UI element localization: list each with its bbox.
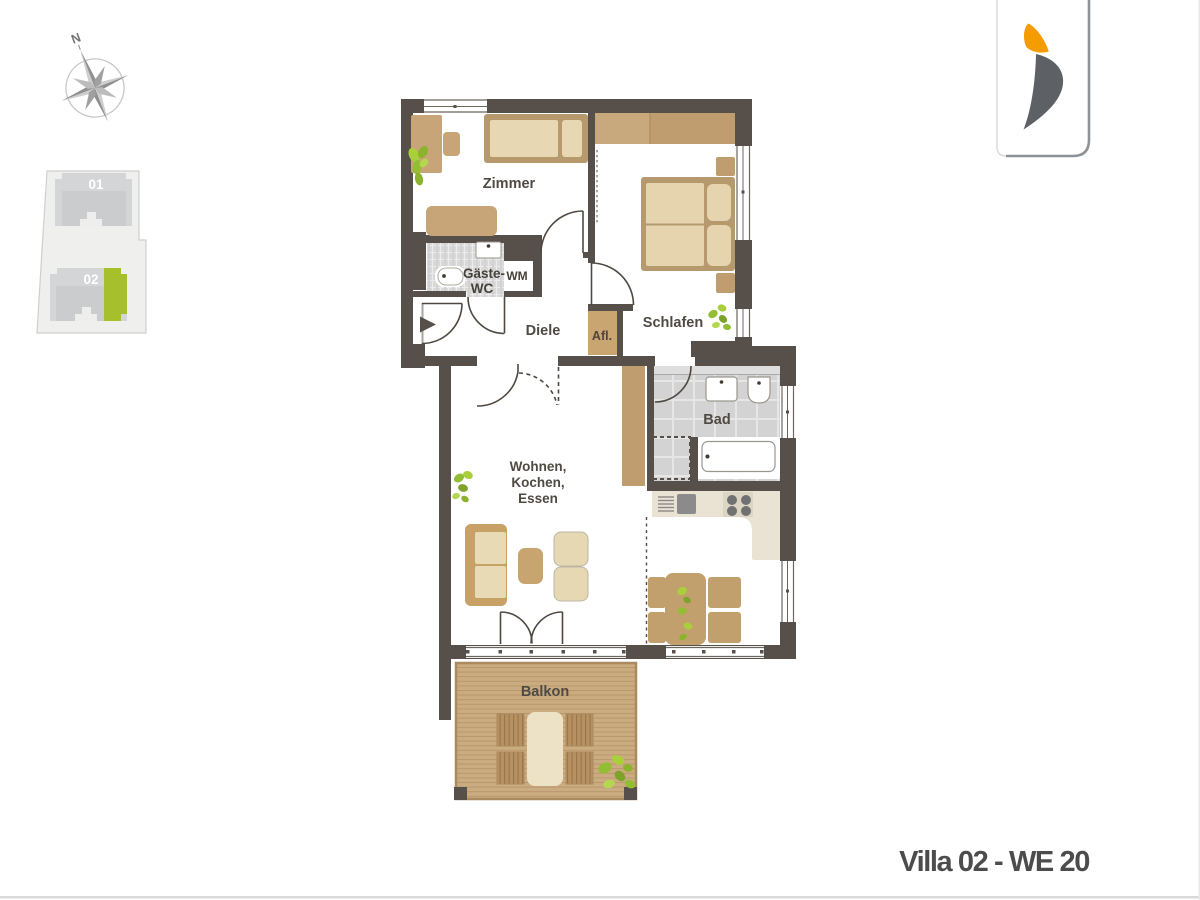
svg-text:01: 01 [88,177,104,192]
svg-text:02: 02 [83,272,98,287]
svg-text:Gäste-: Gäste- [463,266,505,281]
svg-text:WM: WM [506,269,527,283]
svg-text:Villa 02 - WE 20: Villa 02 - WE 20 [899,846,1089,878]
svg-text:Diele: Diele [526,323,561,339]
svg-text:Balkon: Balkon [521,684,569,700]
svg-text:Schlafen: Schlafen [643,315,703,331]
svg-text:WC: WC [471,281,494,296]
svg-text:Bad: Bad [703,412,730,428]
svg-text:Kochen,: Kochen, [511,475,564,490]
svg-text:Essen: Essen [518,491,558,506]
svg-text:Wohnen,: Wohnen, [510,459,567,474]
svg-text:Zimmer: Zimmer [483,176,536,192]
svg-text:Afl.: Afl. [592,329,612,343]
